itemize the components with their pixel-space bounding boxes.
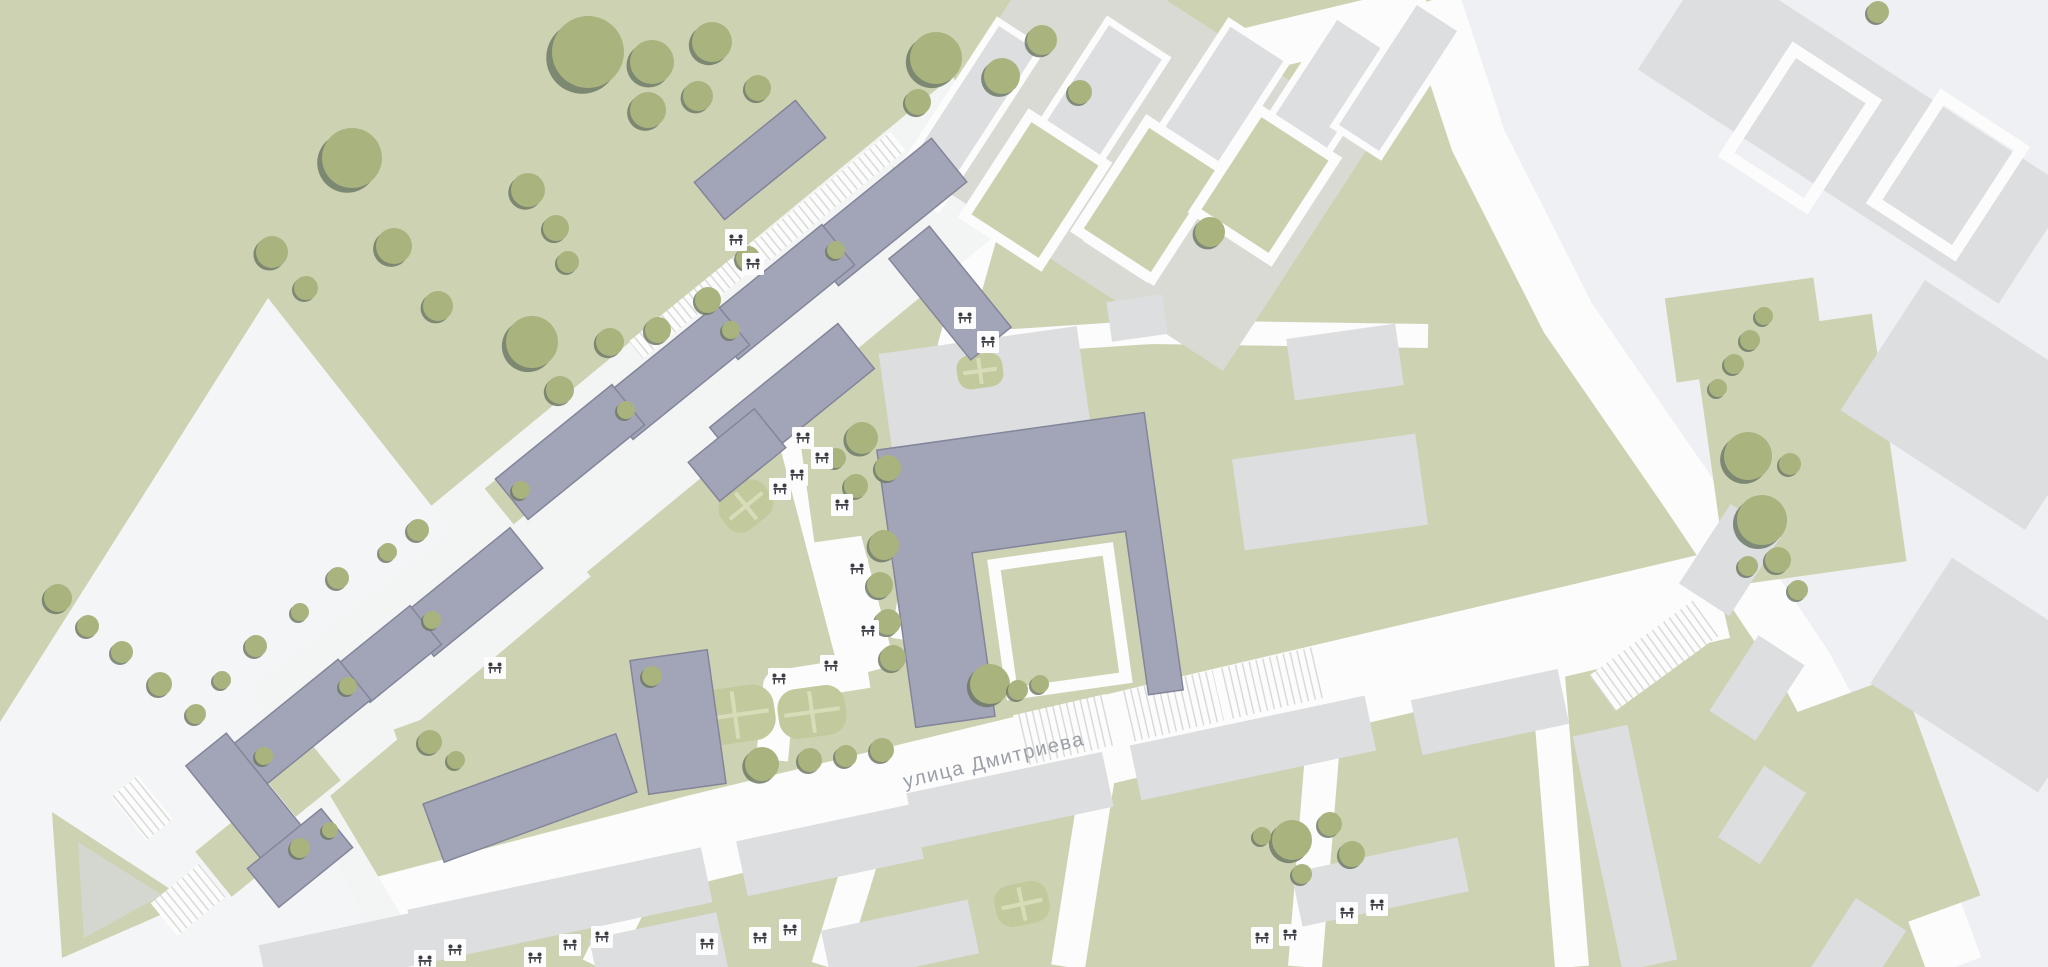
tree-canopy-icon <box>245 635 267 657</box>
tree-canopy-icon <box>213 671 231 689</box>
tree-canopy-icon <box>511 173 545 207</box>
tree-canopy-icon <box>1765 547 1791 573</box>
playground-icon <box>811 447 833 469</box>
siteplan-map: улица Дмитриева <box>0 0 2048 967</box>
tree-canopy-icon <box>870 738 894 762</box>
playground-icon <box>954 307 976 329</box>
tree-canopy-icon <box>44 584 72 612</box>
tree-canopy-icon <box>255 747 273 765</box>
playground-icon <box>1336 902 1358 924</box>
tree-canopy-icon <box>835 745 857 767</box>
playground-icon <box>820 655 842 677</box>
playground-icon <box>484 657 506 679</box>
tree-canopy-icon <box>111 641 133 663</box>
tree-canopy-icon <box>1724 354 1744 374</box>
tree-canopy-icon <box>1755 307 1773 325</box>
playground-icon <box>749 927 771 949</box>
tree-canopy-icon <box>630 92 666 128</box>
tree-canopy-icon <box>642 666 662 686</box>
tree-canopy-icon <box>557 251 579 273</box>
tree-canopy-icon <box>543 215 569 241</box>
tree-canopy-icon <box>552 16 624 88</box>
tree-canopy-icon <box>1740 330 1760 350</box>
tree-canopy-icon <box>910 32 962 84</box>
tree-canopy-icon <box>1031 675 1049 693</box>
tree-canopy-icon <box>423 291 453 321</box>
tree-canopy-icon <box>827 241 845 259</box>
tree-canopy-icon <box>376 228 412 264</box>
tree-canopy-icon <box>867 572 893 598</box>
context-building <box>1106 294 1167 341</box>
tree-canopy-icon <box>1292 864 1312 884</box>
tree-canopy-icon <box>1068 80 1092 104</box>
playground-icon <box>742 253 764 275</box>
tree-canopy-icon <box>692 22 732 62</box>
tree-canopy-icon <box>645 317 671 343</box>
tree-canopy-icon <box>291 603 309 621</box>
tree-canopy-icon <box>695 287 721 313</box>
tree-canopy-icon <box>1724 432 1772 480</box>
playground-icon <box>524 947 546 967</box>
tree-canopy-icon <box>506 316 558 368</box>
tree-canopy-icon <box>1779 453 1801 475</box>
playground-icon <box>769 478 791 500</box>
playground-icon <box>1279 924 1301 946</box>
tree-canopy-icon <box>447 751 465 769</box>
tree-canopy-icon <box>1867 1 1889 23</box>
tree-canopy-icon <box>256 236 288 268</box>
tree-canopy-icon <box>745 747 779 781</box>
tree-canopy-icon <box>1027 25 1057 55</box>
playground-icon <box>792 427 814 449</box>
tree-canopy-icon <box>1339 841 1365 867</box>
tree-canopy-icon <box>683 81 713 111</box>
tree-canopy-icon <box>418 730 442 754</box>
tree-canopy-icon <box>1008 680 1028 700</box>
tree-canopy-icon <box>407 519 429 541</box>
tree-canopy-icon <box>869 530 899 560</box>
tree-canopy-icon <box>327 567 349 589</box>
tree-canopy-icon <box>596 328 624 356</box>
playground-icon <box>444 939 466 961</box>
playground-icon <box>1366 894 1388 916</box>
tree-canopy-icon <box>1272 820 1312 860</box>
playground-icon <box>768 668 790 690</box>
playground-icon <box>846 558 868 580</box>
tree-canopy-icon <box>77 615 99 637</box>
tree-canopy-icon <box>1737 495 1787 545</box>
playground-icon <box>696 933 718 955</box>
tree-canopy-icon <box>798 748 822 772</box>
tree-canopy-icon <box>339 677 357 695</box>
playground-icon <box>977 331 999 353</box>
playground-icon <box>1251 927 1273 949</box>
playground-icon <box>725 229 747 251</box>
tree-canopy-icon <box>322 822 338 838</box>
tree-canopy-icon <box>290 838 310 858</box>
tree-canopy-icon <box>512 481 530 499</box>
tree-canopy-icon <box>630 40 674 84</box>
tree-canopy-icon <box>186 704 206 724</box>
tree-canopy-icon <box>322 128 382 188</box>
tree-canopy-icon <box>148 672 172 696</box>
tree-canopy-icon <box>617 401 635 419</box>
tree-canopy-icon <box>1788 580 1808 600</box>
tree-canopy-icon <box>745 75 771 101</box>
tree-canopy-icon <box>984 58 1020 94</box>
tree-canopy-icon <box>1709 379 1727 397</box>
tree-canopy-icon <box>722 321 740 339</box>
playground-icon <box>779 919 801 941</box>
tree-canopy-icon <box>423 611 441 629</box>
playground-icon <box>857 620 879 642</box>
tree-canopy-icon <box>905 89 931 115</box>
playground-icon <box>414 950 436 967</box>
tree-canopy-icon <box>1253 827 1271 845</box>
playground-icon <box>591 926 613 948</box>
tree-canopy-icon <box>875 455 901 481</box>
playground-icon <box>559 934 581 956</box>
tree-canopy-icon <box>1318 812 1342 836</box>
tree-canopy-icon <box>970 664 1010 704</box>
tree-canopy-icon <box>880 645 906 671</box>
tree-canopy-icon <box>546 376 574 404</box>
tree-canopy-icon <box>1195 217 1225 247</box>
playground-icon <box>831 494 853 516</box>
tree-canopy-icon <box>294 276 318 300</box>
tree-canopy-icon <box>846 422 878 454</box>
tree-canopy-icon <box>1738 556 1758 576</box>
tree-canopy-icon <box>379 543 397 561</box>
